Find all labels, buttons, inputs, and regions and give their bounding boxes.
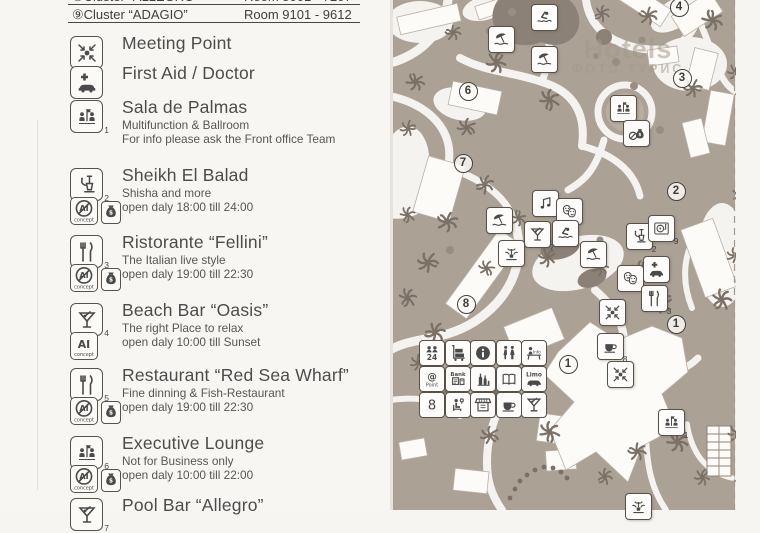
map-masks-icon bbox=[617, 265, 644, 292]
legend-item-subline: open daly 19:00 till 22:30 bbox=[122, 400, 382, 414]
amenity-shop-icon bbox=[470, 366, 496, 392]
map-people-icon bbox=[610, 95, 637, 122]
map-location-number: 8 bbox=[457, 295, 476, 314]
map-umbrella-icon bbox=[531, 46, 558, 73]
map-location-number: 1 bbox=[667, 315, 686, 334]
map-fountain-icon bbox=[625, 493, 652, 520]
legend-item-text: Sala de PalmasMultifunction & BallroomFo… bbox=[122, 97, 382, 146]
extra-charge-moneybag-icon bbox=[101, 469, 121, 492]
not-all-inclusive-concept-icon bbox=[70, 197, 98, 225]
map-fountain-icon bbox=[498, 240, 525, 267]
legend-item-subline: Fine dinning & Fish-Restaurant bbox=[122, 386, 382, 400]
legend-item-text: Restaurant “Red Sea Wharf”Fine dinning &… bbox=[122, 365, 382, 414]
amenity-reception-icon bbox=[419, 340, 445, 366]
legend-item-text: Beach Bar “Oasis”The right Place to rela… bbox=[122, 300, 382, 349]
legend-item-number: 1 bbox=[104, 125, 109, 135]
map-icon-number: 1 bbox=[684, 430, 689, 440]
map-coffee-icon: 8 bbox=[597, 333, 624, 360]
legend-item-subline: open daly 10:00 till 22:00 bbox=[122, 468, 382, 482]
legend-item-number: 4 bbox=[104, 328, 109, 338]
legend-item-text: Sheikh El BaladShisha and moreopen daly … bbox=[122, 165, 382, 214]
scanned-resort-map-page: { "header": { "rows": [ {"name": "⑧Clust… bbox=[0, 0, 760, 510]
extra-charge-moneybag-icon bbox=[101, 268, 121, 291]
legend-item-text: Meeting Point bbox=[122, 33, 382, 54]
legend-item-subline: For info please ask the Front office Tea… bbox=[122, 132, 382, 146]
legend-item-number: 7 bbox=[104, 523, 109, 533]
amenity-info-icon bbox=[470, 340, 496, 366]
map-location-number: 7 bbox=[454, 154, 473, 173]
amenity-hairdresser-icon bbox=[445, 392, 471, 418]
legend-item-title: Ristorante “Fellini” bbox=[122, 232, 382, 253]
legend-item-subline: The Italian live style bbox=[122, 253, 382, 267]
extra-charge-moneybag-icon bbox=[101, 201, 121, 224]
legend-page: ⑧Cluster “ALLEGRO” Room 8001 - 7207⑨Clus… bbox=[0, 0, 390, 510]
amenity-limo-icon bbox=[521, 366, 547, 392]
cluster-name: ⑨Cluster “ADAGIO” bbox=[72, 7, 188, 22]
legend-item-subline: Shisha and more bbox=[122, 186, 382, 200]
map-umbrella-icon bbox=[580, 241, 607, 268]
amenity-eight-icon bbox=[419, 392, 445, 418]
map-location-number: 2 bbox=[667, 182, 686, 201]
map-icon-number: 3 bbox=[667, 306, 672, 316]
map-location-number: 1 bbox=[559, 355, 578, 374]
not-all-inclusive-concept-icon bbox=[70, 264, 98, 292]
legend-item-subline: Multifunction & Ballroom bbox=[122, 118, 382, 132]
map-meeting-icon bbox=[599, 299, 626, 326]
resort-map: Hotels ФОТО ТУРИС 43672811729381 bbox=[390, 0, 760, 510]
legend-item-title: Sheikh El Balad bbox=[122, 165, 382, 186]
map-firstaid-icon bbox=[643, 256, 670, 283]
legend-item-text: Pool Bar “Allegro” bbox=[122, 495, 382, 516]
all-inclusive-concept-icon bbox=[70, 332, 98, 360]
map-turntable-icon: 9 bbox=[648, 215, 675, 242]
legend-item-title: Beach Bar “Oasis” bbox=[122, 300, 382, 321]
paper-fold-line bbox=[37, 120, 38, 490]
amenity-coffee-icon bbox=[496, 392, 522, 418]
map-music-icon bbox=[532, 190, 559, 217]
map-swimmer-icon bbox=[552, 220, 579, 247]
map-people-icon: 1 bbox=[658, 409, 685, 436]
map-meeting-icon bbox=[607, 361, 634, 388]
legend-item-text: Ristorante “Fellini”The Italian live sty… bbox=[122, 232, 382, 281]
amenity-luggage-icon bbox=[445, 340, 471, 366]
map-icon-number: 2 bbox=[652, 244, 657, 254]
amenity-bank-icon bbox=[445, 366, 471, 392]
cluster-room-range: Room 9101 - 9612 bbox=[244, 7, 352, 22]
meeting-icon bbox=[70, 36, 103, 69]
extra-charge-moneybag-icon bbox=[101, 401, 121, 424]
map-location-number: 3 bbox=[673, 69, 692, 88]
legend-item-text: Executive LoungeNot for Business onlyope… bbox=[122, 433, 382, 482]
not-all-inclusive-concept-icon bbox=[70, 465, 98, 493]
cluster-row: ⑨Cluster “ADAGIO” Room 9101 - 9612 bbox=[68, 7, 360, 23]
legend-item-subline: The right Place to relax bbox=[122, 321, 382, 335]
map-location-number: 6 bbox=[459, 82, 478, 101]
map-nomoney-icon bbox=[623, 120, 650, 147]
legend-item-subline: open daly 18:00 till 24:00 bbox=[122, 200, 382, 214]
map-umbrella-icon bbox=[488, 26, 515, 53]
map-location-number: 4 bbox=[670, 0, 689, 17]
legend-item-subline: open daly 10:00 till Sunset bbox=[122, 335, 382, 349]
legend-item-text: First Aid / Doctor bbox=[122, 63, 382, 84]
legend-item-title: Meeting Point bbox=[122, 33, 382, 54]
people-icon: 1 bbox=[70, 100, 103, 133]
legend-item-title: Restaurant “Red Sea Wharf” bbox=[122, 365, 382, 386]
amenity-wc-icon bbox=[496, 340, 522, 366]
legend-item-subline: Not for Business only bbox=[122, 454, 382, 468]
cluster-room-range: Room 8001 - 7207 bbox=[244, 0, 352, 4]
amenity-atpoint-icon bbox=[419, 366, 445, 392]
map-swimmer-icon bbox=[531, 4, 558, 31]
legend-item-title: Sala de Palmas bbox=[122, 97, 382, 118]
map-background bbox=[390, 0, 760, 510]
map-martini-icon: 7 bbox=[524, 221, 551, 248]
map-umbrella-icon bbox=[486, 207, 513, 234]
legend-item-subline: open daly 19:00 till 22:30 bbox=[122, 267, 382, 281]
amenity-book-icon bbox=[496, 366, 522, 392]
not-all-inclusive-concept-icon bbox=[70, 397, 98, 425]
map-cutlery-icon: 3 bbox=[641, 285, 668, 312]
map-icon-number: 9 bbox=[674, 236, 679, 246]
amenity-infodesk-icon bbox=[521, 340, 547, 366]
cluster-row: ⑧Cluster “ALLEGRO” Room 8001 - 7207 bbox=[68, 0, 360, 5]
firstaid-icon bbox=[70, 66, 103, 99]
legend-item-title: First Aid / Doctor bbox=[122, 63, 382, 84]
amenity-martini-icon bbox=[521, 392, 547, 418]
cluster-name: ⑧Cluster “ALLEGRO” bbox=[72, 0, 199, 4]
legend-item-title: Executive Lounge bbox=[122, 433, 382, 454]
legend-item-title: Pool Bar “Allegro” bbox=[122, 495, 382, 516]
amenity-kiosk-icon bbox=[470, 392, 496, 418]
martini-icon: 7 bbox=[70, 498, 103, 531]
